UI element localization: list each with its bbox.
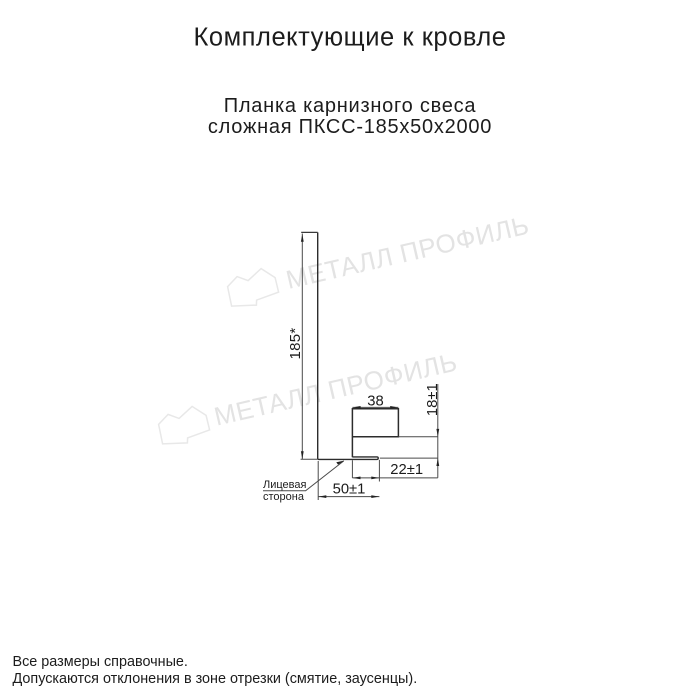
svg-text:18±1: 18±1 — [425, 383, 441, 416]
svg-text:Лицевая: Лицевая — [263, 479, 306, 491]
svg-text:сложная ПКСС-185х50х2000: сложная ПКСС-185х50х2000 — [208, 116, 492, 138]
svg-text:185*: 185* — [287, 327, 304, 359]
svg-text:22±1: 22±1 — [390, 462, 423, 478]
svg-text:МЕТАЛЛ ПРОФИЛЬ: МЕТАЛЛ ПРОФИЛЬ — [283, 210, 532, 295]
svg-text:38: 38 — [367, 393, 383, 409]
svg-text:сторона: сторона — [263, 491, 305, 503]
svg-text:50±1: 50±1 — [333, 482, 366, 498]
svg-text:Комплектующие к кровле: Комплектующие к кровле — [193, 23, 506, 51]
svg-text:Планка карнизного свеса: Планка карнизного свеса — [224, 95, 477, 117]
svg-text:Допускаются отклонения в зоне: Допускаются отклонения в зоне отрезки (с… — [13, 671, 418, 687]
svg-text:Все размеры справочные.: Все размеры справочные. — [13, 654, 188, 670]
svg-text:МЕТАЛЛ ПРОФИЛЬ: МЕТАЛЛ ПРОФИЛЬ — [211, 347, 460, 432]
